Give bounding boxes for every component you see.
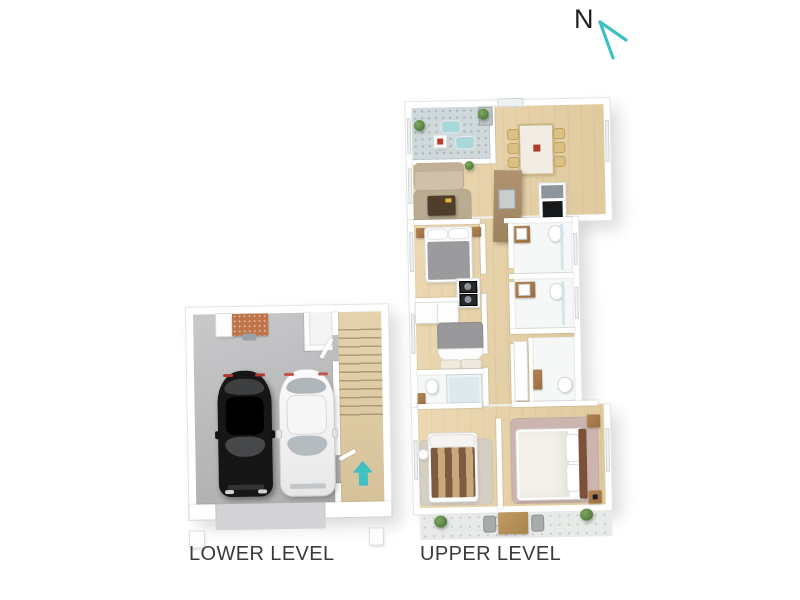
wall bbox=[483, 368, 489, 406]
cooktop bbox=[542, 201, 562, 217]
pillow bbox=[428, 229, 447, 238]
lamp bbox=[593, 494, 598, 499]
blanket bbox=[427, 241, 470, 280]
fridge bbox=[541, 185, 563, 198]
grille bbox=[290, 483, 326, 489]
window bbox=[407, 118, 412, 154]
driveway-apron bbox=[215, 502, 325, 530]
basin bbox=[519, 285, 529, 295]
patio-chair bbox=[532, 516, 543, 531]
workbench-pegboard bbox=[232, 313, 268, 336]
black-car bbox=[217, 370, 273, 497]
car-roof bbox=[287, 395, 326, 434]
window bbox=[411, 314, 416, 354]
basin bbox=[517, 229, 526, 239]
wall bbox=[325, 501, 391, 517]
patio-table bbox=[498, 512, 528, 535]
upper-level-plan bbox=[405, 98, 630, 546]
arrow-stem bbox=[358, 473, 367, 486]
pillow bbox=[567, 465, 580, 491]
wardrobe bbox=[514, 342, 527, 400]
pillow bbox=[566, 435, 579, 461]
windshield bbox=[287, 435, 327, 456]
nightstand bbox=[416, 228, 425, 238]
pillow bbox=[462, 360, 481, 368]
taillight bbox=[284, 373, 294, 376]
dining-chair bbox=[508, 144, 518, 153]
dining-chair bbox=[509, 158, 519, 167]
taillight bbox=[223, 374, 233, 377]
lower-level-label: LOWER LEVEL bbox=[189, 543, 335, 566]
headboard bbox=[578, 429, 587, 499]
nightstand bbox=[472, 227, 481, 237]
wall bbox=[189, 504, 215, 519]
dryer bbox=[459, 294, 477, 306]
arrow-head bbox=[353, 461, 373, 473]
floor-plan-figure: N bbox=[0, 0, 800, 600]
window bbox=[573, 233, 578, 265]
taillight bbox=[255, 373, 265, 376]
garage-door-post bbox=[370, 528, 383, 544]
north-arrow-icon bbox=[586, 14, 646, 70]
duvet bbox=[518, 431, 569, 498]
island-sink bbox=[499, 190, 514, 208]
bed-2-blanket bbox=[438, 323, 483, 350]
dining-chair bbox=[554, 143, 564, 152]
car-roof bbox=[225, 396, 264, 435]
lower-level-plan bbox=[186, 304, 392, 553]
bed-3-cover bbox=[431, 447, 476, 498]
window bbox=[574, 287, 579, 319]
lounge-chair bbox=[456, 137, 474, 148]
nightstand bbox=[587, 414, 600, 427]
pillow bbox=[449, 229, 468, 238]
wall bbox=[332, 312, 338, 335]
pillow bbox=[430, 435, 474, 447]
side-mirror bbox=[215, 431, 219, 439]
washer bbox=[459, 281, 477, 293]
window bbox=[408, 168, 413, 204]
window bbox=[413, 440, 418, 480]
wall bbox=[335, 483, 341, 502]
window bbox=[409, 232, 414, 272]
rear-window bbox=[286, 377, 326, 394]
headlight bbox=[258, 489, 267, 493]
stairs-up-arrow-icon bbox=[353, 461, 373, 489]
side-mirror bbox=[271, 430, 275, 438]
table-decor bbox=[437, 139, 443, 145]
coffee-table bbox=[427, 195, 455, 216]
dining-chair bbox=[555, 157, 565, 166]
skylight-window bbox=[497, 98, 523, 108]
centerpiece bbox=[533, 144, 540, 151]
vanity bbox=[533, 370, 542, 390]
side-mirror bbox=[333, 429, 337, 437]
windshield bbox=[225, 436, 265, 457]
upper-level-label: UPPER LEVEL bbox=[420, 543, 561, 566]
stair-treads bbox=[338, 328, 383, 421]
dining-chair bbox=[508, 130, 518, 139]
patio-chair bbox=[484, 517, 495, 532]
white-car bbox=[279, 369, 335, 496]
taillight bbox=[318, 372, 328, 375]
rear-window bbox=[224, 378, 264, 395]
dining-chair bbox=[554, 129, 564, 138]
window bbox=[605, 120, 610, 162]
lounge-chair bbox=[442, 121, 460, 132]
workbench-cabinet bbox=[216, 314, 232, 336]
pillow bbox=[441, 360, 460, 368]
headlight bbox=[225, 490, 234, 494]
workbench-vise bbox=[242, 334, 256, 341]
north-indicator: N bbox=[566, 4, 656, 76]
side-mirror bbox=[277, 430, 281, 438]
sofa-back bbox=[415, 163, 463, 172]
table-book bbox=[445, 198, 451, 202]
